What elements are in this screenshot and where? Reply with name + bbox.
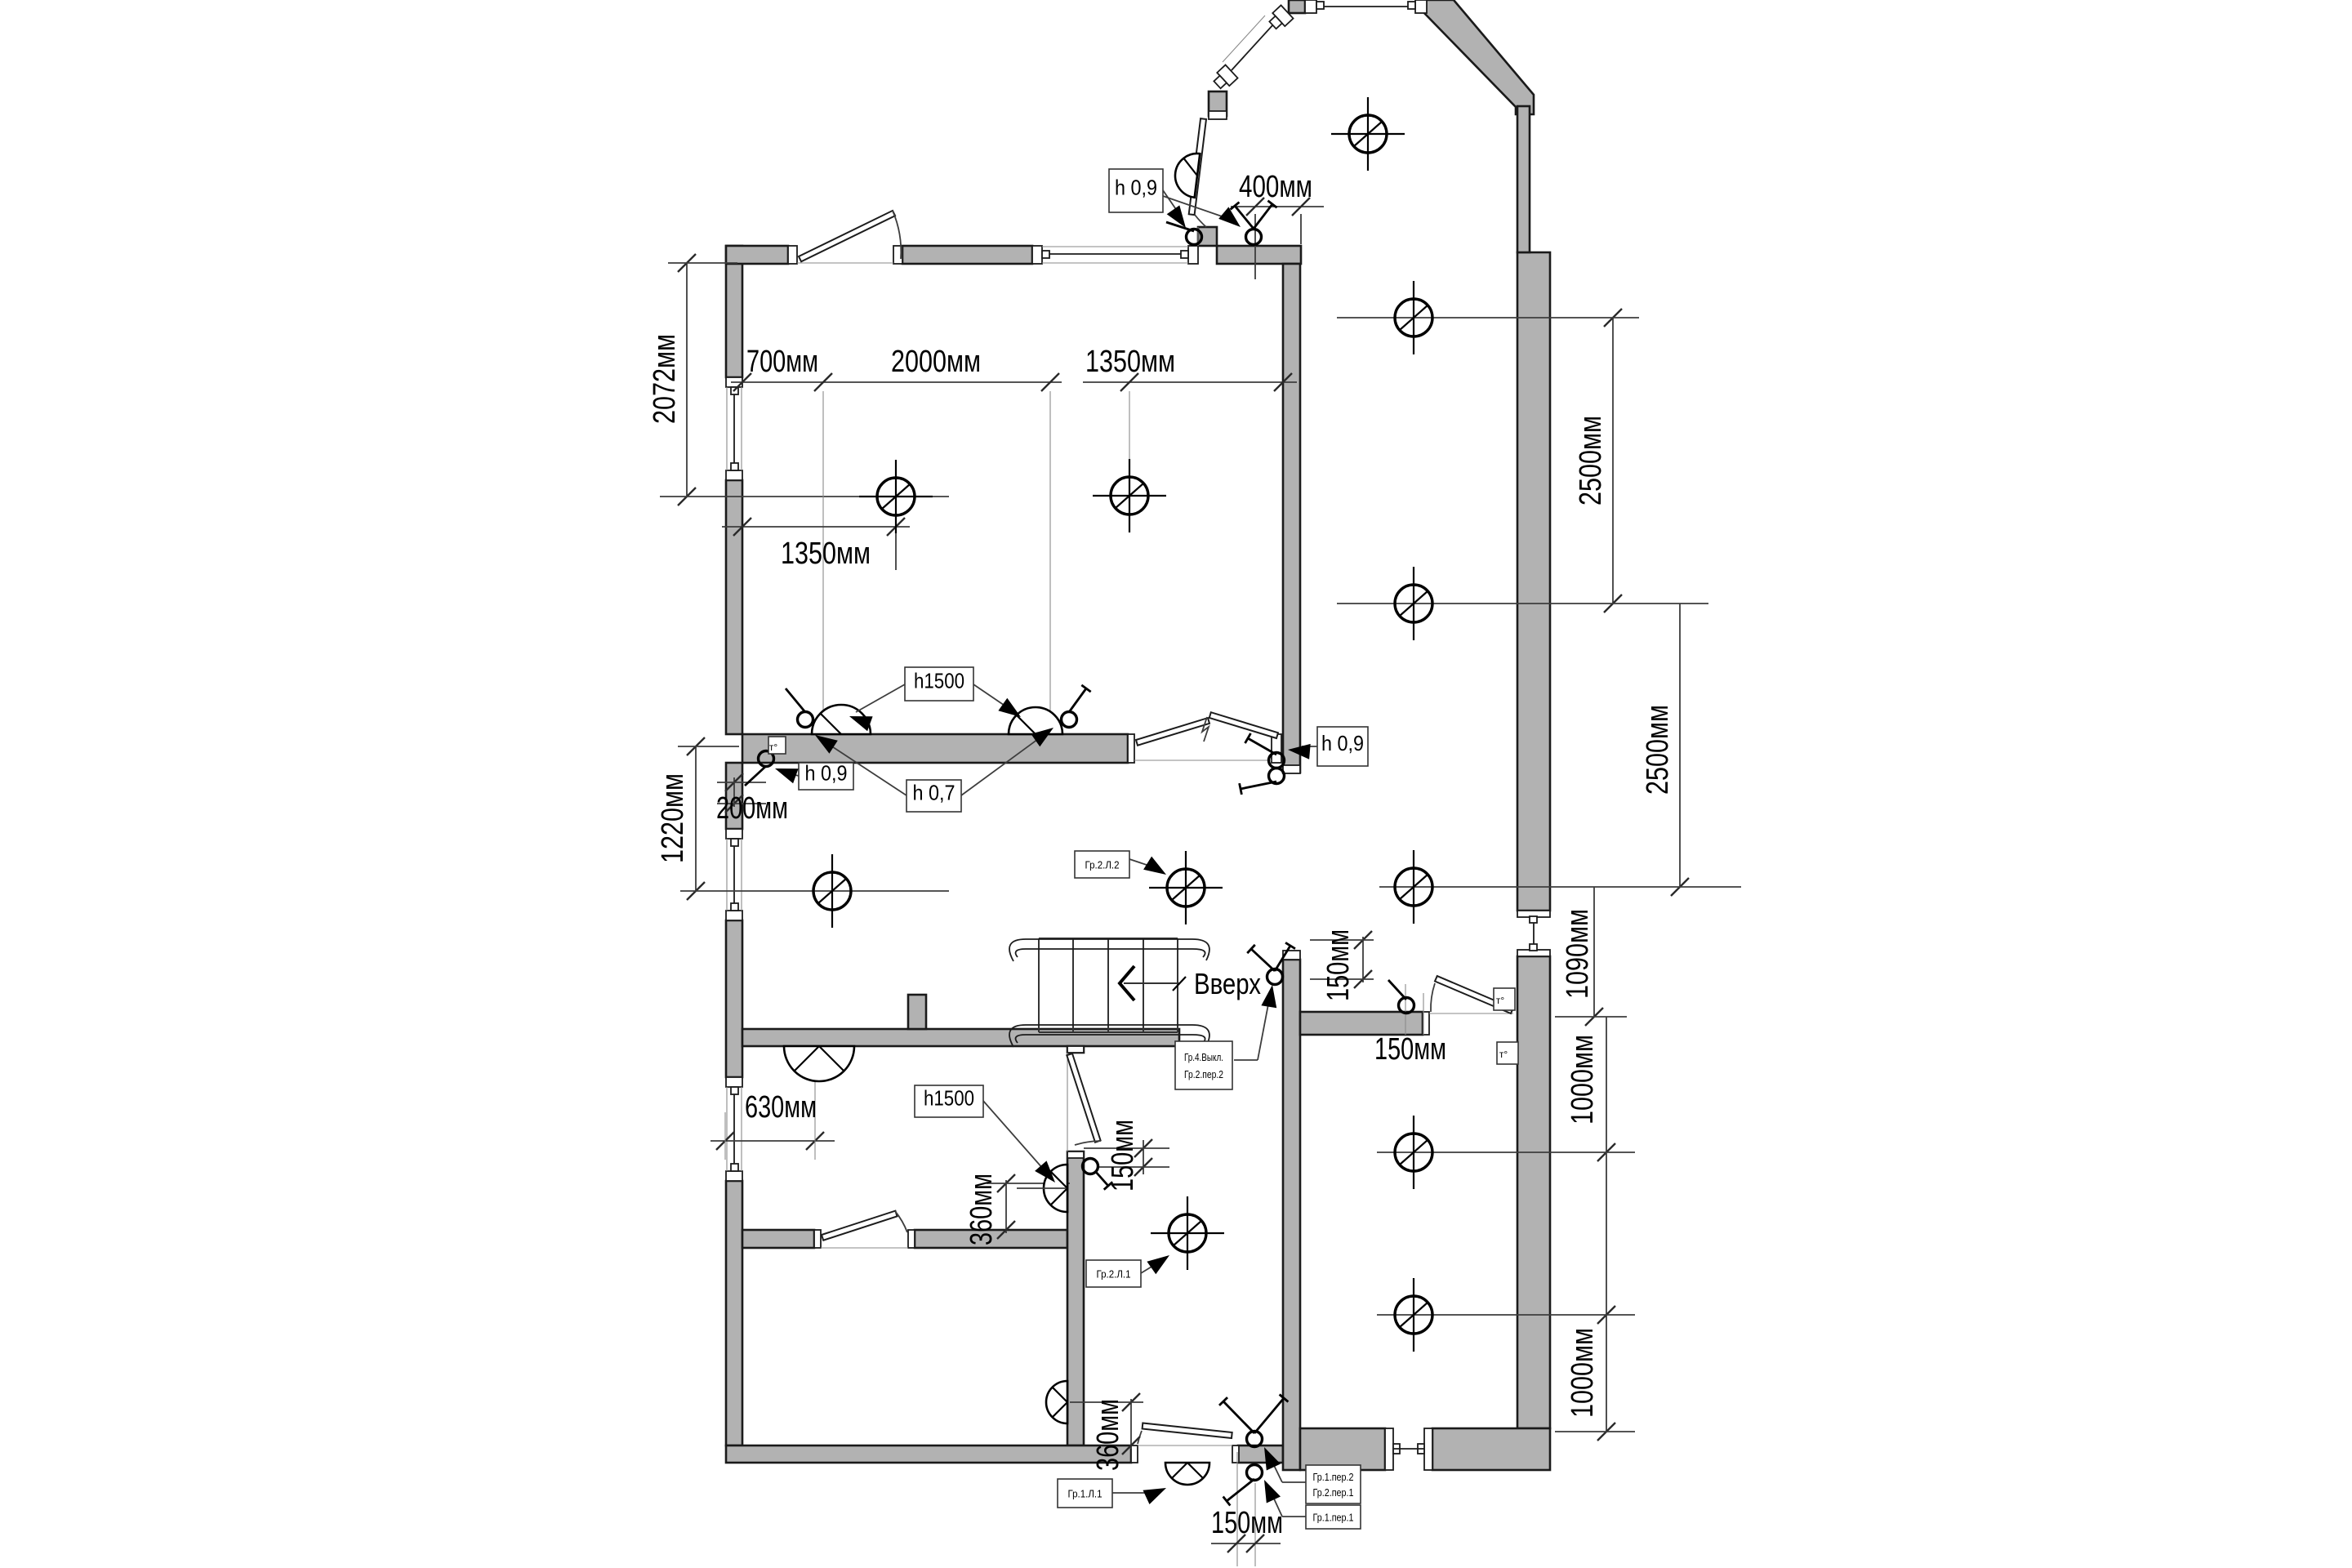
svg-text:400мм: 400мм <box>1239 170 1312 204</box>
svg-text:Гр.1.Л.1: Гр.1.Л.1 <box>1068 1488 1102 1500</box>
svg-text:Гр.2.Л.2: Гр.2.Л.2 <box>1085 859 1120 871</box>
svg-text:2072мм: 2072мм <box>648 334 682 424</box>
svg-text:h1500: h1500 <box>914 669 964 693</box>
svg-text:h 0,9: h 0,9 <box>1321 731 1364 755</box>
svg-text:360мм: 360мм <box>964 1174 999 1245</box>
svg-text:Гр.2.Л.1: Гр.2.Л.1 <box>1097 1268 1131 1281</box>
svg-text:1350мм: 1350мм <box>1085 345 1175 379</box>
svg-text:1000мм: 1000мм <box>1566 1035 1600 1125</box>
svg-text:150мм: 150мм <box>1106 1120 1140 1192</box>
svg-text:h 0,7: h 0,7 <box>913 781 955 805</box>
svg-text:Вверх: Вверх <box>1194 967 1261 1000</box>
svg-text:150мм: 150мм <box>1211 1506 1283 1540</box>
svg-text:630мм: 630мм <box>745 1090 817 1125</box>
svg-text:Гр.4.Выкл.: Гр.4.Выкл. <box>1184 1051 1223 1063</box>
svg-text:1220мм: 1220мм <box>656 773 690 863</box>
svg-text:т°: т° <box>769 742 777 753</box>
svg-text:360мм: 360мм <box>1091 1399 1125 1471</box>
svg-text:Гр.2.пер.2: Гр.2.пер.2 <box>1184 1068 1223 1080</box>
svg-text:h 0,9: h 0,9 <box>1115 176 1157 200</box>
svg-text:1090мм: 1090мм <box>1561 909 1595 999</box>
svg-text:700мм: 700мм <box>746 345 818 379</box>
svg-text:т°: т° <box>1499 1049 1508 1060</box>
svg-text:150мм: 150мм <box>1321 929 1356 1001</box>
svg-text:Гр.1.пер.1: Гр.1.пер.1 <box>1313 1512 1354 1524</box>
svg-text:Гр.2.пер.1: Гр.2.пер.1 <box>1313 1486 1354 1499</box>
svg-text:1350мм: 1350мм <box>781 537 871 571</box>
svg-text:2500мм: 2500мм <box>1641 705 1675 795</box>
svg-text:2000мм: 2000мм <box>891 345 981 379</box>
svg-text:h 0,9: h 0,9 <box>805 761 848 786</box>
svg-text:т°: т° <box>1496 995 1504 1006</box>
svg-text:h1500: h1500 <box>924 1086 974 1111</box>
svg-text:1000мм: 1000мм <box>1566 1328 1600 1418</box>
svg-text:150мм: 150мм <box>1374 1032 1446 1067</box>
svg-text:200мм: 200мм <box>716 791 788 826</box>
svg-text:2500мм: 2500мм <box>1574 416 1608 506</box>
svg-text:Гр.1.пер.2: Гр.1.пер.2 <box>1313 1471 1354 1483</box>
